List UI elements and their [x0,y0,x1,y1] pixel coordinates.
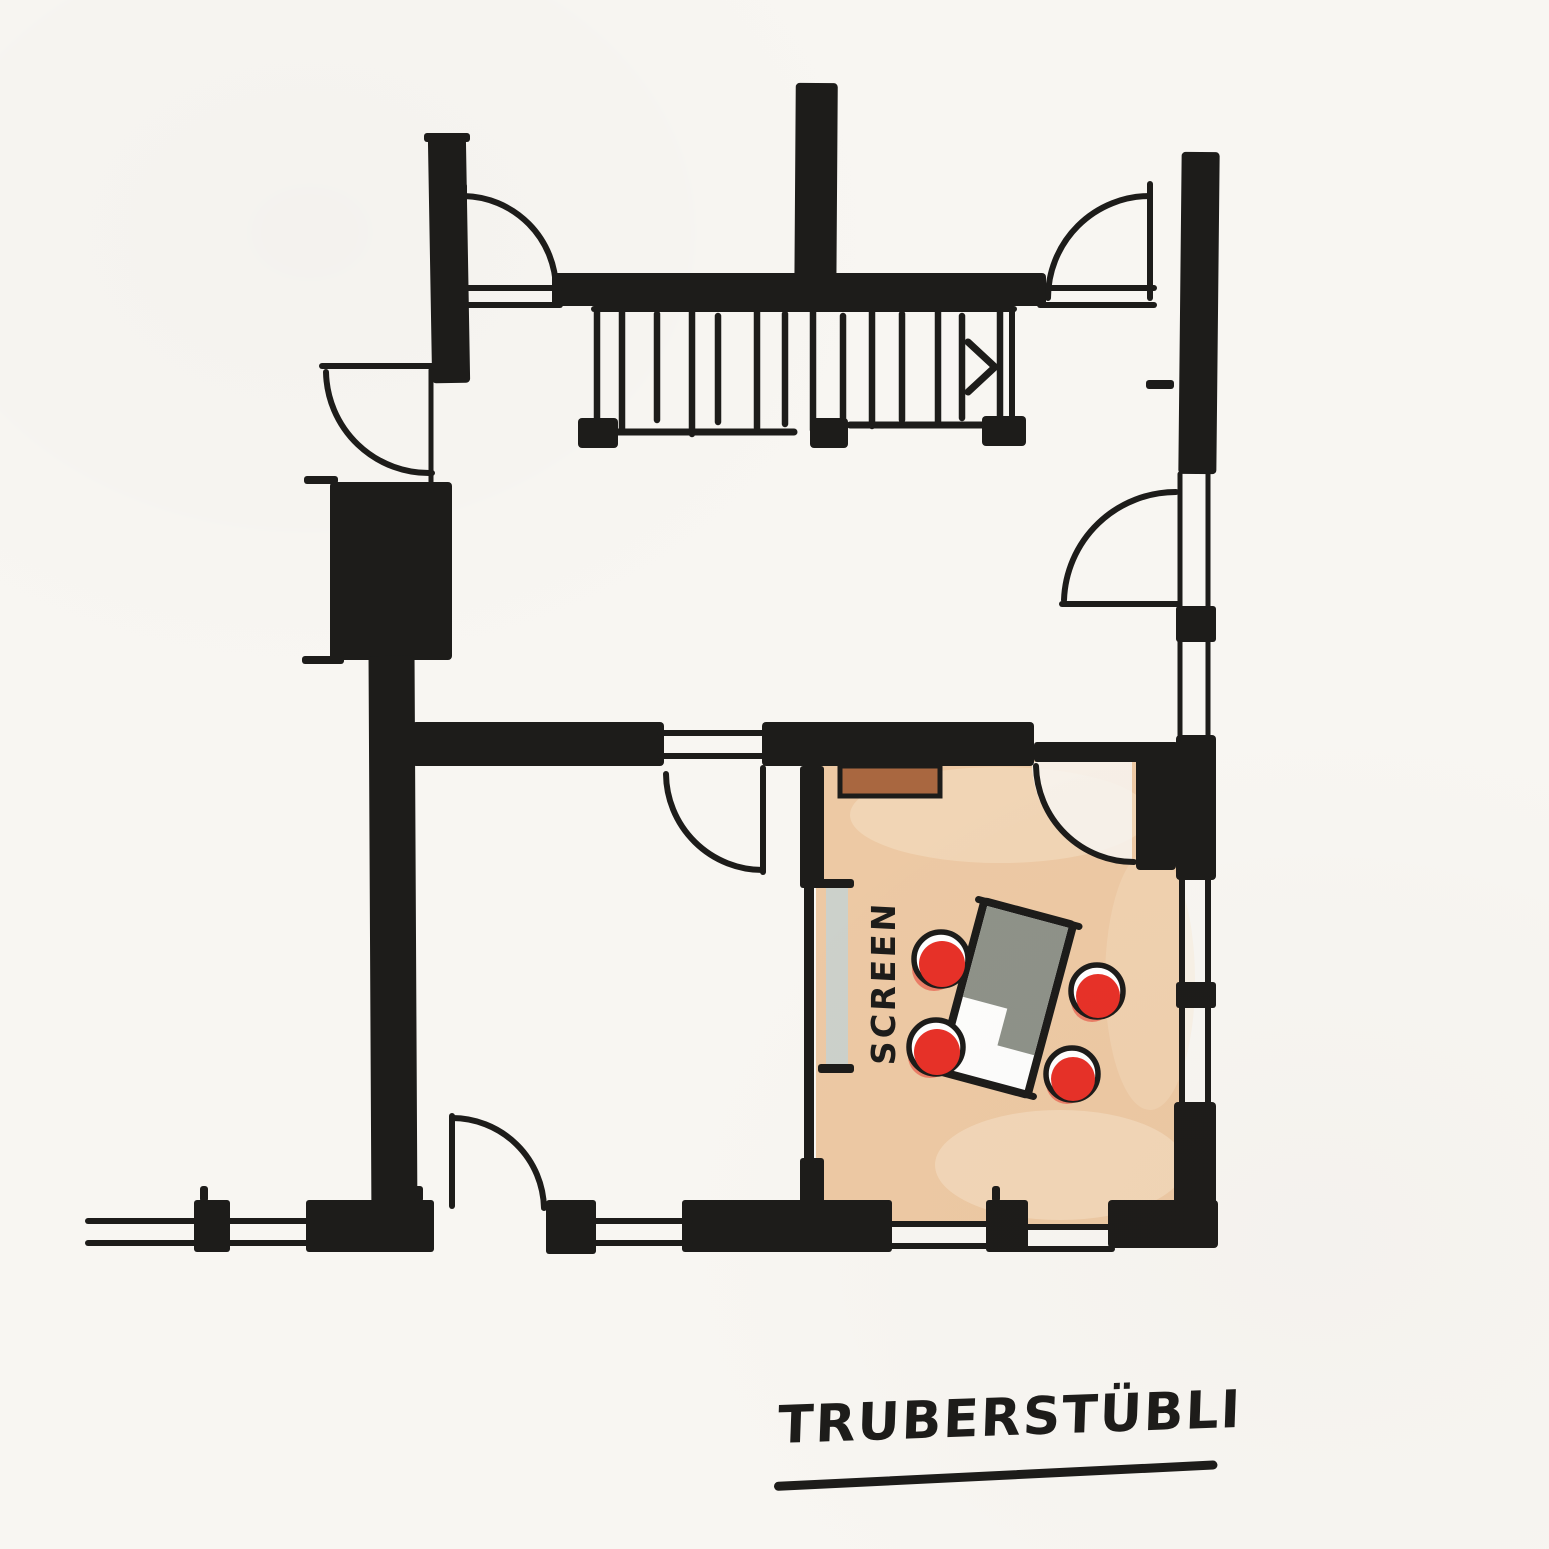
door-swing-arc [1048,196,1150,298]
door-swing-arc [464,196,556,289]
screen-label: SCREEN [855,889,913,1076]
wall-bottom-block [306,1200,434,1252]
wall-middle-left [412,722,664,766]
wall-corner-post [1136,742,1176,870]
window-bottom-room-left [888,1224,992,1246]
stair-rail-block [810,418,848,448]
screen-end-cap [818,1064,854,1073]
wall-partition-line [804,888,814,1162]
wall-partition-upper [800,766,824,888]
stair-treads [597,312,1000,434]
sideboard [840,766,940,796]
door-swing-arc [452,1118,544,1208]
stair-direction-arrow [968,342,995,392]
tick-mark [304,476,338,484]
wall-stair-landing [552,273,1046,306]
tick-mark [302,656,344,664]
chair-seat [919,941,965,987]
tick-mark [414,1186,423,1202]
staircase [578,309,1026,448]
door-bottom-wall [452,1116,544,1208]
chair [912,932,968,991]
tick-mark [992,1186,1000,1202]
door-swing-arc [326,372,432,473]
window-mullion [1176,982,1216,1008]
screen-panel [826,886,848,1072]
tick-mark [200,1186,208,1202]
tick-mark [424,133,470,142]
window-bottom-room-right [1024,1227,1112,1249]
tick-mark [1146,380,1174,389]
chair-seat [1076,974,1120,1018]
floor-plan-drawing [0,0,1549,1549]
door-top-right [1040,184,1154,305]
stair-rail-block [982,416,1026,446]
chair [908,1020,963,1078]
wall-right-room-upper [1176,735,1216,880]
chair [1046,1048,1098,1104]
door-left-wall [322,366,432,490]
door-swing-arc [666,774,763,870]
wall-middle-right [762,722,1034,766]
chair-seat [1051,1057,1095,1101]
chair-seat [914,1029,960,1075]
stair-rail-block [578,418,618,448]
wall-right-upper [1178,152,1219,474]
chimney-block [330,482,452,660]
wall-bottom-block [546,1200,596,1254]
floor-plan-canvas: SCREEN TRUBERSTÜBLI [0,0,1549,1549]
door-top-left [452,186,560,305]
window-bottom-mid [594,1221,690,1243]
window-right-room [1176,876,1216,1106]
wall-bottom-right-corner [1108,1200,1218,1248]
wall-left-lower [369,656,418,1220]
wall-bottom-block [682,1200,892,1252]
door-middle-wall [660,733,766,872]
door-swing-arc [1064,492,1176,600]
